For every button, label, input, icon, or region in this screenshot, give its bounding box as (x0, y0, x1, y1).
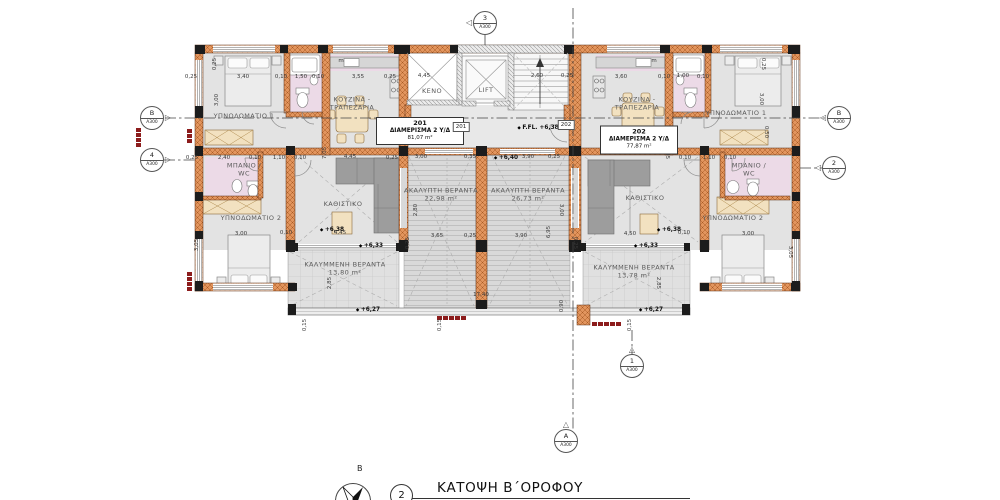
floor-plan-drawing (0, 0, 1000, 500)
floor-plan-page: ΥΠΝΟΔΩΜΑΤΙΟ 1ΥΠΝΟΔΩΜΑΤΙΟ 1ΚΟΥΖΙΝΑ - ΤΡΑΠ… (0, 0, 1000, 500)
north-arrow (335, 483, 371, 500)
drawing-title: ΚΑΤΟΨΗ Β΄ΟΡΟΦΟΥ (437, 480, 583, 496)
title-underline (412, 498, 690, 499)
north-label: B (357, 464, 363, 473)
drawing-number-badge: 2 (390, 484, 413, 500)
drawing-number: 2 (398, 490, 404, 500)
north-needle (336, 484, 370, 500)
